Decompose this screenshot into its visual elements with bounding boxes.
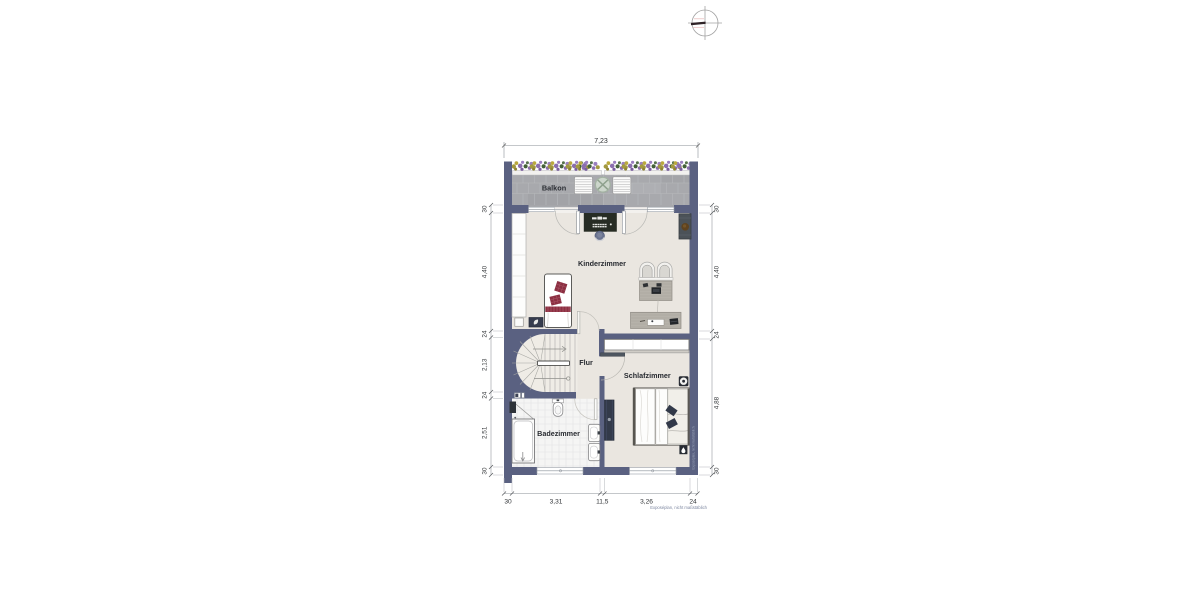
svg-text:30: 30 [714, 205, 721, 213]
svg-text:30: 30 [482, 467, 489, 475]
svg-text:Exposéplan, nicht maßstäblich: Exposéplan, nicht maßstäblich [691, 426, 695, 469]
svg-text:24: 24 [482, 391, 489, 399]
svg-text:7,23: 7,23 [594, 138, 608, 145]
svg-text:Exposéplan, nicht maßstäblich: Exposéplan, nicht maßstäblich [650, 505, 707, 510]
svg-text:30: 30 [714, 467, 721, 475]
svg-text:3,31: 3,31 [550, 499, 563, 506]
svg-text:30: 30 [482, 205, 489, 213]
svg-text:24: 24 [482, 330, 489, 338]
svg-text:24: 24 [714, 331, 721, 339]
svg-text:Balkon: Balkon [542, 183, 566, 192]
svg-text:11,5: 11,5 [596, 499, 609, 506]
svg-text:Badezimmer: Badezimmer [537, 429, 580, 438]
svg-text:Flur: Flur [579, 358, 593, 367]
svg-text:30: 30 [504, 499, 512, 506]
svg-text:4,40: 4,40 [714, 265, 721, 278]
svg-text:Schlafzimmer: Schlafzimmer [624, 371, 671, 380]
svg-text:4,40: 4,40 [482, 265, 489, 278]
svg-text:4,88: 4,88 [714, 396, 721, 409]
svg-text:2,13: 2,13 [482, 358, 489, 371]
svg-text:2,51: 2,51 [482, 426, 489, 439]
svg-text:Kinderzimmer: Kinderzimmer [578, 259, 626, 268]
